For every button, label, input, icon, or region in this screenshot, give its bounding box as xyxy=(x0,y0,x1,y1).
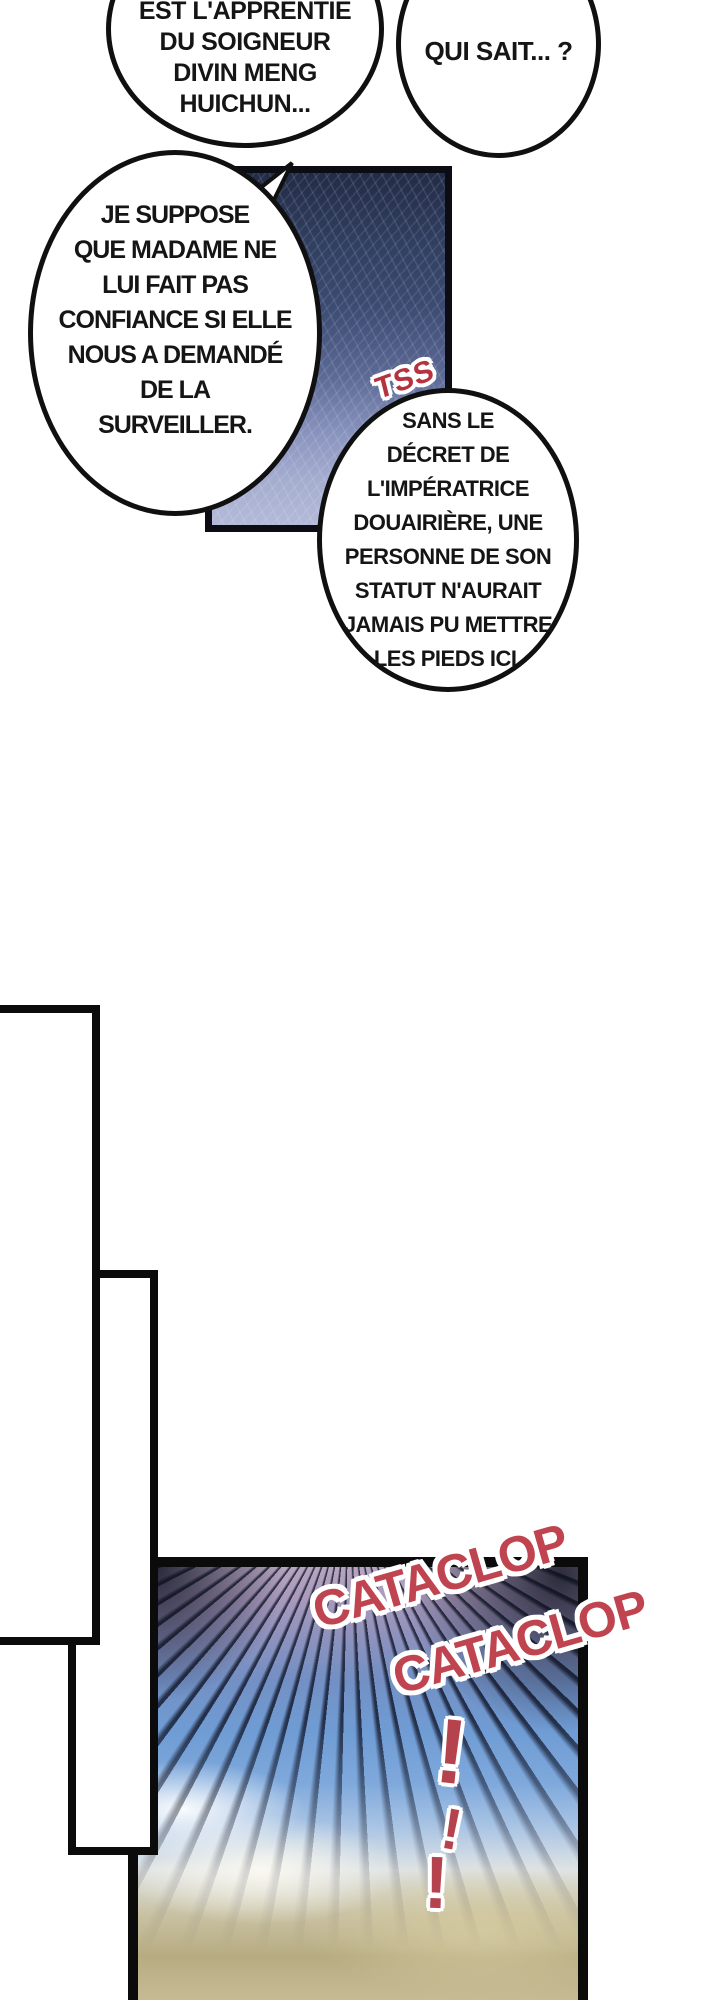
bubble-line: CONFIANCE SI ELLE xyxy=(28,303,322,338)
bubble-line: L'IMPÉRATRICE xyxy=(317,472,579,506)
bubble-text-apprentie: EST L'APPRENTIE DU SOIGNEUR DIVIN MENG H… xyxy=(106,0,384,120)
bubble-line: HUICHUN... xyxy=(106,89,384,120)
bubble-line: DÉCRET DE xyxy=(317,438,579,472)
bubble-line: LUI FAIT PAS xyxy=(28,268,322,303)
panel-blank-1 xyxy=(0,1005,100,1645)
bubble-line: SURVEILLER. xyxy=(28,408,322,443)
comic-page: EST L'APPRENTIE DU SOIGNEUR DIVIN MENG H… xyxy=(0,0,720,2000)
bubble-line: DIVIN MENG xyxy=(106,58,384,89)
bubble-line: JE SUPPOSE xyxy=(28,198,322,233)
bubble-line: STATUT N'AURAIT xyxy=(317,574,579,608)
sfx-exclamation-3: ! xyxy=(423,1840,451,1926)
bubble-line: EST L'APPRENTIE xyxy=(106,0,384,27)
bubble-line: SANS LE xyxy=(317,404,579,438)
speech-bubble-qui-sait: QUI SAIT... ? xyxy=(396,0,601,158)
bubble-text-sans-le-decret: SANS LE DÉCRET DE L'IMPÉRATRICE DOUAIRIÈ… xyxy=(317,404,579,676)
bubble-line: DU SOIGNEUR xyxy=(106,27,384,58)
bubble-line: QUE MADAME NE xyxy=(28,233,322,268)
bubble-line: DOUAIRIÈRE, UNE xyxy=(317,506,579,540)
bubble-text-je-suppose: JE SUPPOSE QUE MADAME NE LUI FAIT PAS CO… xyxy=(28,198,322,443)
bubble-line: NOUS A DEMANDÉ xyxy=(28,338,322,373)
bubble-line: DE LA xyxy=(28,373,322,408)
bubble-line: LES PIEDS ICI. xyxy=(317,642,579,676)
bubble-line: JAMAIS PU METTRE xyxy=(317,608,579,642)
bubble-line: PERSONNE DE SON xyxy=(317,540,579,574)
bubble-text-qui-sait: QUI SAIT... ? xyxy=(424,36,572,67)
